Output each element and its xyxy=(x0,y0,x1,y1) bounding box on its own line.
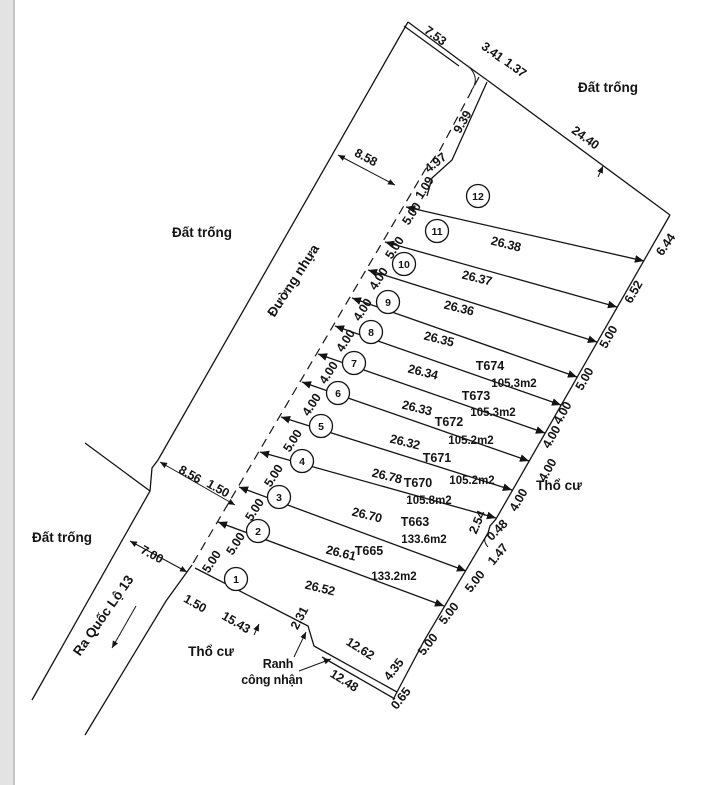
top-measure: 7.53 xyxy=(422,23,449,48)
region-empty-bottom-left: Đất trống xyxy=(32,530,92,545)
length-label: 26.38 xyxy=(490,234,523,255)
parcel-id: T673 xyxy=(462,389,491,403)
parcel-area: 105.8m2 xyxy=(406,495,451,507)
plot-number: 3 xyxy=(276,492,282,504)
top-measure: 4.97 xyxy=(422,150,449,176)
dim-label: 15.43 xyxy=(219,609,252,636)
rear-width: 4.00 xyxy=(507,486,531,514)
length-label: 26.34 xyxy=(407,362,440,383)
dim-label: 7.00 xyxy=(138,543,166,567)
rear-width: 4.35 xyxy=(381,656,407,683)
parcel-id: T663 xyxy=(401,515,430,529)
top-measure: 24.40 xyxy=(569,123,602,152)
region-residential-right: Thổ cư xyxy=(536,478,582,493)
divider-11-10 xyxy=(385,242,617,307)
parcel-id: T665 xyxy=(355,544,384,558)
length-label: 26.35 xyxy=(423,329,456,350)
rear-width: 1.47 xyxy=(485,541,511,568)
boundary-note-line1: Ranh xyxy=(263,657,293,671)
length-label: 26.33 xyxy=(401,398,434,419)
highway-direction-arrow xyxy=(112,606,136,648)
top-measure: 1.37 xyxy=(502,55,529,80)
length-label: 26.61 xyxy=(325,543,358,564)
front-width: 5.00 xyxy=(223,530,248,558)
front-width: 4.00 xyxy=(333,327,358,355)
highway-road-right xyxy=(85,565,192,735)
rear-width: 6.52 xyxy=(622,278,646,306)
rear-width: 5.00 xyxy=(573,365,597,393)
boundary-note-line2: công nhận xyxy=(241,673,302,687)
plot-divider-lines xyxy=(195,207,644,699)
dim-label: 12.62 xyxy=(344,635,377,663)
parcel-id: T672 xyxy=(435,415,464,429)
top-measure-labels: 7.53 3.41 1.37 24.40 9.39 4.97 1.09 xyxy=(412,23,601,201)
rear-width: 5.00 xyxy=(415,631,441,658)
tick-15-43 xyxy=(254,624,259,635)
plot-number: 6 xyxy=(335,388,341,400)
empty-land-divider xyxy=(85,443,150,491)
front-width: 4.00 xyxy=(366,265,391,293)
length-label: 26.78 xyxy=(371,466,404,487)
rear-width: 5.00 xyxy=(597,323,621,351)
top-measure: 3.41 xyxy=(479,39,506,64)
rear-width: 5.00 xyxy=(462,568,488,595)
dim-label: 1.50 xyxy=(204,477,232,501)
length-label: 26.32 xyxy=(389,432,422,453)
top-measure: 9.39 xyxy=(451,108,475,136)
top-measure: 1.09 xyxy=(412,174,436,202)
front-width: 5.00 xyxy=(242,496,267,524)
front-width: 5.00 xyxy=(199,548,224,576)
plot-number: 11 xyxy=(431,226,442,238)
plot-number: 9 xyxy=(385,297,391,309)
plot-number: 10 xyxy=(398,259,410,271)
parcel-id: T674 xyxy=(476,359,505,373)
cadastral-drawing: 12 11 10 9 8 7 6 5 4 3 2 1 26.38 26.37 2… xyxy=(0,0,725,785)
region-empty-top-right: Đất trống xyxy=(578,80,638,95)
angle-arc xyxy=(468,66,475,91)
parcel-area: 105.3m2 xyxy=(470,407,515,419)
region-residential-bottom: Thổ cư xyxy=(188,644,234,659)
north-boundary-24-40 xyxy=(487,80,670,215)
survey-map-page: 12 11 10 9 8 7 6 5 4 3 2 1 26.38 26.37 2… xyxy=(0,0,725,785)
parcel-area: 105.2m2 xyxy=(448,435,493,447)
plot-number: 12 xyxy=(472,191,484,203)
top-edge-segment xyxy=(462,62,487,80)
ranh-leader-1 xyxy=(294,632,306,657)
parcel-id: T670 xyxy=(404,476,433,490)
plot-number: 5 xyxy=(318,421,324,433)
plot-number-circles: 12 11 10 9 8 7 6 5 4 3 2 1 xyxy=(225,185,490,591)
region-empty-mid-left: Đất trống xyxy=(172,225,232,240)
ranh-leader-2 xyxy=(299,659,331,671)
plot-number: 4 xyxy=(299,456,305,468)
parcel-area: 105.2m2 xyxy=(449,475,494,487)
parcel-area: 133.2m2 xyxy=(371,571,416,583)
parcel-id: T671 xyxy=(423,451,452,465)
dim-label: 1.50 xyxy=(181,592,209,616)
dim-label: 12.48 xyxy=(328,667,361,695)
rear-width: 6.44 xyxy=(653,231,678,259)
plot12-west-edge xyxy=(427,82,487,196)
length-label: 26.52 xyxy=(304,578,337,599)
dim-label: 8.58 xyxy=(352,146,380,170)
tick-24-40 xyxy=(598,166,603,177)
dim-label: 8.56 xyxy=(176,463,204,487)
rear-width: 4.00 xyxy=(540,423,564,451)
region-road: Đường nhựa xyxy=(264,241,322,319)
plot-number: 7 xyxy=(351,358,357,370)
parcel-area: 133.6m2 xyxy=(401,534,446,546)
plot-number: 2 xyxy=(255,526,261,538)
dim-label: 2.31 xyxy=(288,604,312,632)
rear-width: 0.48 xyxy=(484,517,511,544)
parcel-area: 105.3m2 xyxy=(491,378,536,390)
front-width: 4.00 xyxy=(350,296,375,324)
plot-number: 8 xyxy=(368,327,374,339)
length-label: 26.36 xyxy=(443,298,476,319)
plot-number: 1 xyxy=(233,574,239,586)
front-width: 5.00 xyxy=(399,200,424,228)
rear-width-labels: 6.44 6.52 5.00 5.00 4.00 4.00 4.00 4.00 … xyxy=(381,231,678,712)
length-label: 26.70 xyxy=(351,505,384,526)
